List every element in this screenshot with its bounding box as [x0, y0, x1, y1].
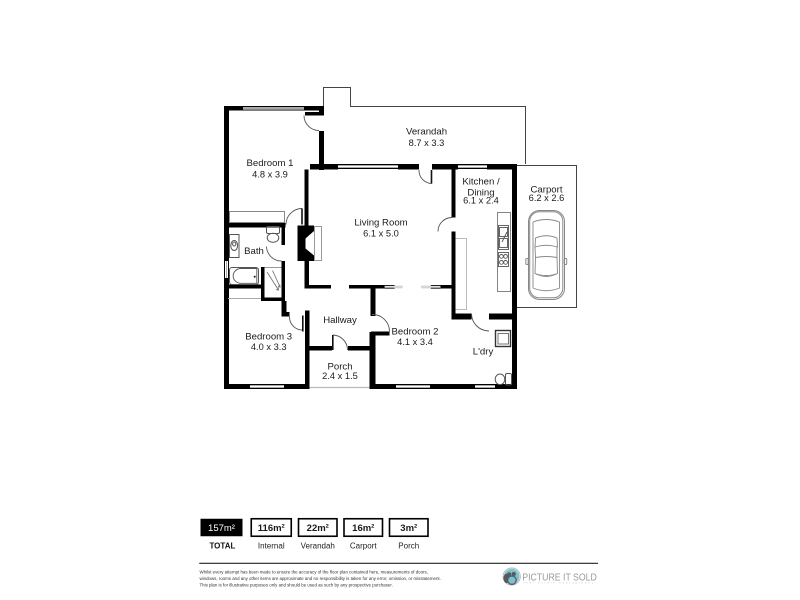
svg-text:Bedroom 2: Bedroom 2 — [392, 327, 439, 338]
svg-text:Porch: Porch — [398, 542, 419, 551]
svg-text:3m²: 3m² — [400, 523, 417, 534]
svg-text:4.8 x 3.9: 4.8 x 3.9 — [252, 170, 288, 180]
svg-text:windows, rooms and any other i: windows, rooms and any other items are a… — [200, 576, 441, 581]
svg-text:Living Room: Living Room — [354, 218, 407, 229]
svg-text:116m²: 116m² — [258, 523, 285, 534]
svg-text:Verandah: Verandah — [301, 542, 335, 551]
svg-text:Whilst every attempt has been: Whilst every attempt has been made to en… — [200, 570, 428, 575]
svg-text:8.7 x 3.3: 8.7 x 3.3 — [409, 138, 445, 148]
svg-text:Kitchen /: Kitchen / — [462, 177, 500, 188]
svg-text:6.1 x 5.0: 6.1 x 5.0 — [363, 229, 399, 239]
svg-text:Bedroom 1: Bedroom 1 — [247, 158, 294, 169]
svg-text:Hallway: Hallway — [323, 315, 357, 326]
svg-text:Verandah: Verandah — [406, 127, 447, 138]
svg-text:157m²: 157m² — [208, 523, 235, 534]
svg-text:Internal: Internal — [258, 542, 285, 551]
svg-text:2.4 x 1.5: 2.4 x 1.5 — [322, 371, 358, 381]
svg-text:16m²: 16m² — [352, 523, 374, 534]
svg-text:4.1 x 3.4: 4.1 x 3.4 — [397, 337, 433, 347]
svg-text:Bedroom 3: Bedroom 3 — [245, 332, 292, 343]
svg-text:L'dry: L'dry — [473, 347, 494, 358]
svg-text:This plan is for illustrative: This plan is for illustrative purposes o… — [200, 583, 393, 588]
svg-text:real estate photography: real estate photography — [524, 580, 595, 584]
svg-text:Bath: Bath — [244, 246, 264, 257]
svg-text:6.1 x 2.4: 6.1 x 2.4 — [463, 196, 499, 206]
svg-text:4.0 x 3.3: 4.0 x 3.3 — [251, 342, 287, 352]
svg-text:6.2 x 2.6: 6.2 x 2.6 — [529, 193, 565, 203]
svg-text:Carport: Carport — [350, 542, 377, 551]
svg-text:TOTAL: TOTAL — [209, 542, 235, 551]
svg-text:22m²: 22m² — [307, 523, 329, 534]
